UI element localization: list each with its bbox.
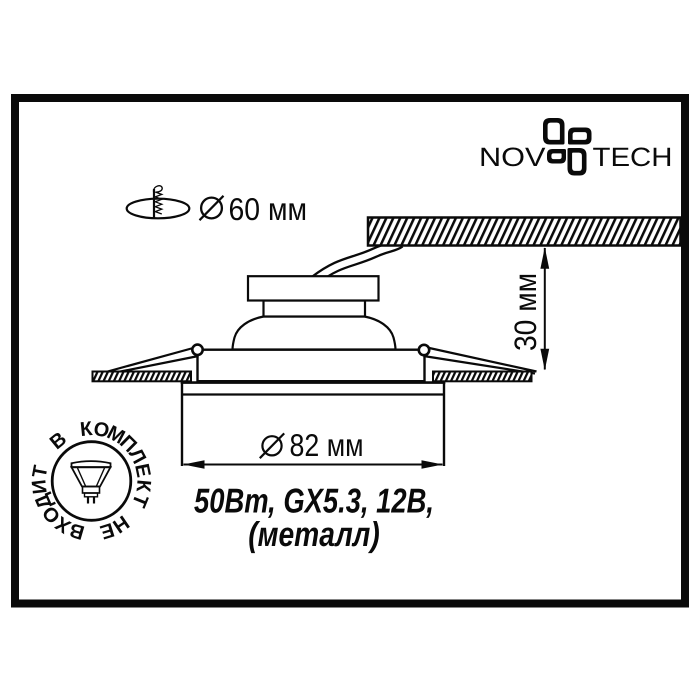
svg-text:60 мм: 60 мм [229,191,308,227]
svg-text:(металл): (металл) [248,516,380,554]
svg-text:TECH: TECH [593,142,673,172]
svg-text:50Вт, GX5.3, 12В,: 50Вт, GX5.3, 12В, [194,483,434,521]
svg-text:NOV: NOV [479,142,546,172]
svg-text:30 мм: 30 мм [508,273,543,351]
svg-text:И: И [28,478,51,495]
svg-text:82 мм: 82 мм [290,427,364,463]
